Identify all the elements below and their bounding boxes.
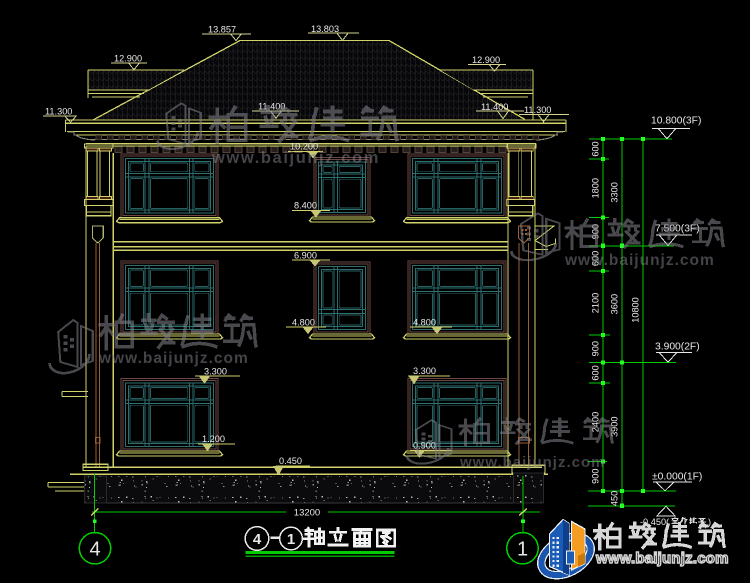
svg-text:±0.000(1F): ±0.000(1F) [652,471,702,482]
svg-text:2100: 2100 [591,293,601,313]
svg-text:900: 900 [591,341,601,356]
svg-text:4.800: 4.800 [413,318,436,328]
svg-text:www.baijunjz.com: www.baijunjz.com [595,550,729,567]
svg-text:11.300: 11.300 [45,107,72,117]
svg-text:www.baijunjz.com: www.baijunjz.com [564,252,715,269]
svg-text:13.857: 13.857 [208,25,236,35]
svg-text:11.400: 11.400 [481,102,508,112]
svg-text:): ) [708,517,711,527]
svg-text:13.803: 13.803 [311,24,339,34]
svg-text:www.baijunjz.com: www.baijunjz.com [459,454,605,471]
svg-text:10.800(3F): 10.800(3F) [651,116,701,127]
svg-text:0.450: 0.450 [279,456,302,466]
svg-text:4.800: 4.800 [292,318,315,328]
svg-text:4: 4 [253,531,262,548]
svg-text:3300: 3300 [610,182,620,202]
svg-text:12.900: 12.900 [114,54,142,64]
svg-text:600: 600 [591,365,601,380]
svg-text:www.baijunjz.com: www.baijunjz.com [98,350,249,367]
svg-text:13200: 13200 [294,508,320,519]
svg-text:www.baijunjz.com: www.baijunjz.com [211,149,380,167]
svg-text:3.300: 3.300 [413,366,436,376]
svg-text:3.900(2F): 3.900(2F) [655,342,700,353]
svg-text:3.300: 3.300 [204,367,227,377]
svg-text:10800: 10800 [631,297,641,323]
svg-text:11.300: 11.300 [524,105,551,115]
svg-text:1800: 1800 [591,178,601,198]
svg-text:1: 1 [287,531,295,548]
svg-text:4: 4 [89,539,100,561]
svg-text:6.900: 6.900 [294,251,317,261]
svg-text:1.200: 1.200 [202,434,225,444]
svg-text:1: 1 [517,539,528,561]
svg-text:450: 450 [610,491,620,506]
svg-text:3600: 3600 [610,294,620,314]
svg-text:8.400: 8.400 [294,201,317,211]
svg-text:600: 600 [591,141,601,156]
svg-text:12.900: 12.900 [472,55,500,65]
